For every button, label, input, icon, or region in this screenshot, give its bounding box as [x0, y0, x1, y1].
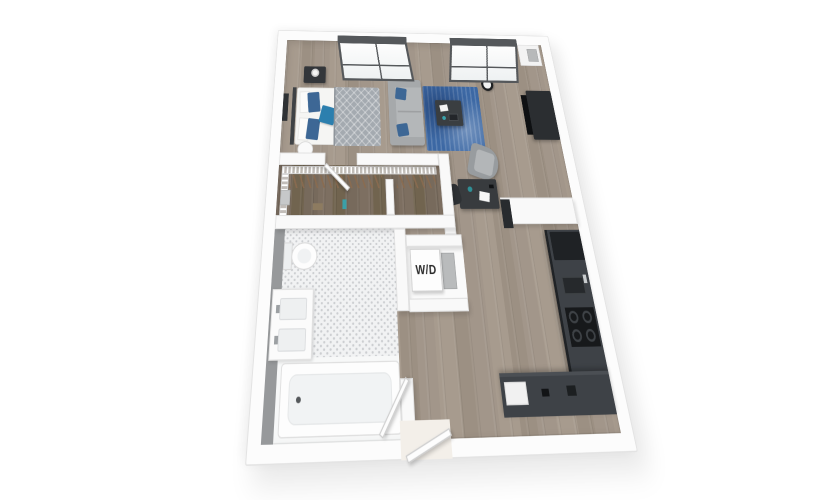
desk-table [457, 179, 500, 209]
bedroom-closet-wall-left [279, 152, 325, 165]
cooktop [565, 307, 602, 347]
burner-4 [585, 329, 597, 342]
toilet [283, 241, 319, 271]
burner-3 [571, 329, 583, 342]
apartment-floorplan: W/D [245, 30, 638, 466]
faucet-top [276, 305, 280, 313]
bed [293, 87, 381, 145]
laundry-nook-wall-top [406, 234, 463, 247]
bathtub-basin [287, 372, 393, 426]
closet-utility-panel [280, 190, 291, 205]
laundry-nook-wall-bottom [409, 298, 469, 312]
closet-item-teal [342, 199, 346, 209]
sofa-pillow-bottom [396, 123, 409, 137]
coffee-table [435, 100, 464, 126]
closet-divider-wall [385, 179, 394, 215]
counter-item-small [541, 389, 549, 397]
accent-chair-seat [474, 149, 495, 177]
coffee-table-tray [448, 114, 458, 121]
pillow-blue-top [307, 92, 320, 113]
burner-2 [581, 311, 593, 324]
sink-bottom [277, 328, 306, 352]
floorplan-canvas: W/D [0, 0, 825, 500]
burner-1 [568, 311, 580, 324]
coffee-table-cup [442, 116, 446, 120]
coffee-table-book [439, 104, 448, 111]
kitchen-faucet [582, 275, 587, 284]
counter-appliance-white [504, 382, 529, 406]
vanity [268, 289, 314, 361]
closet-hangers-right [396, 175, 436, 188]
washer-dryer-unit: W/D [410, 249, 443, 292]
sofa-arm-bottom [390, 137, 425, 146]
wall-niche [517, 45, 542, 66]
sofa-pillow-top [395, 87, 407, 100]
closet-bathroom-wall [275, 215, 456, 229]
window-right [449, 43, 519, 83]
desk-vase [467, 186, 472, 192]
sink-top [279, 298, 307, 321]
refrigerator [549, 232, 585, 260]
bedroom-closet-wall-right [357, 153, 439, 166]
faucet-bottom [274, 336, 278, 345]
sofa [388, 80, 426, 146]
closet-storage-box [313, 203, 323, 210]
sofa-cushion-seam [398, 111, 422, 113]
window-left [338, 41, 415, 81]
kitchen-counter-bottom [499, 371, 617, 418]
duvet [333, 87, 381, 146]
niche-utility-box [526, 49, 538, 62]
washer-dryer-label: W/D [415, 262, 437, 277]
closet-wire-shelf-top [282, 166, 437, 175]
desk-item [489, 185, 494, 189]
counter-item-dark [566, 385, 577, 396]
desk-papers [479, 191, 489, 202]
